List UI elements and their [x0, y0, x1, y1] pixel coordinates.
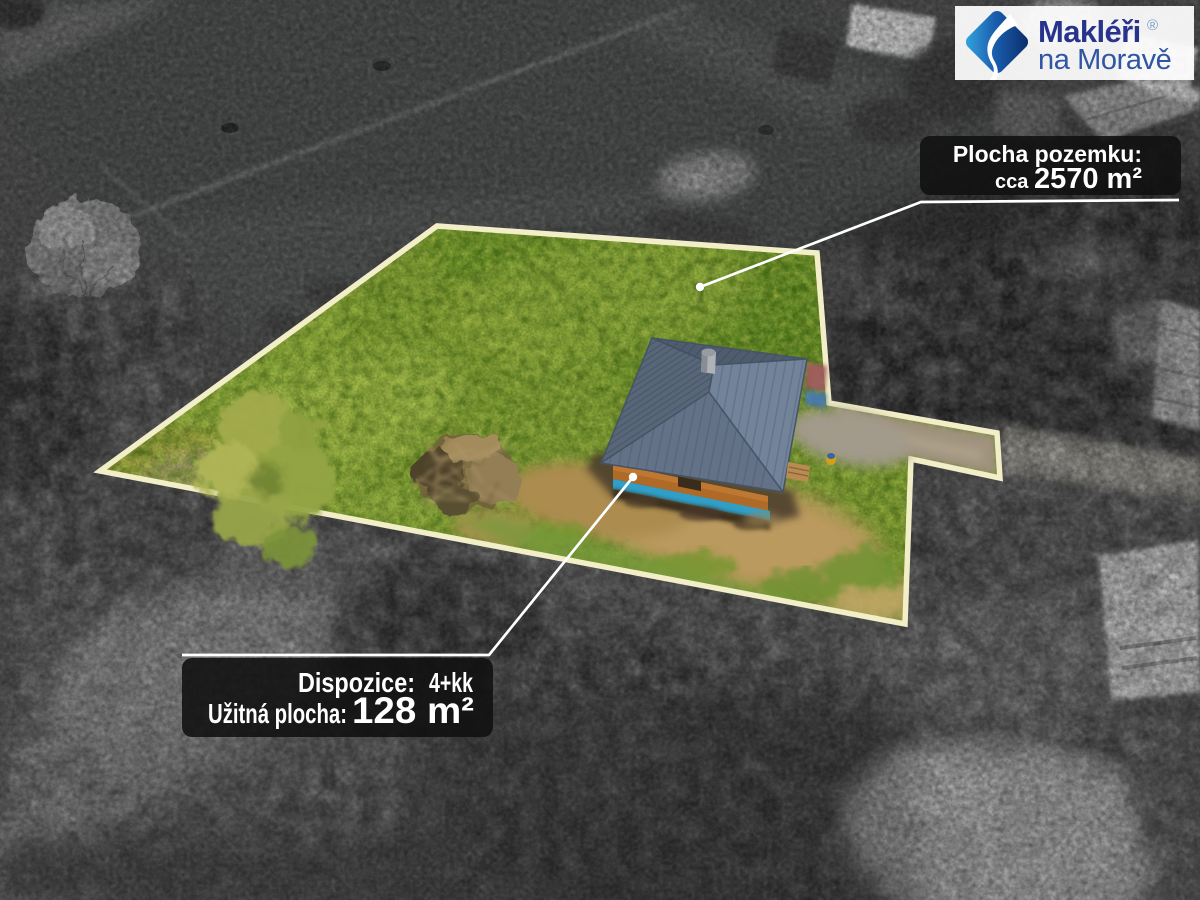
svg-text:128 m²: 128 m²	[352, 690, 474, 731]
svg-text:Užitná plocha:: Užitná plocha:	[208, 698, 347, 729]
svg-text:®: ®	[1147, 17, 1158, 34]
svg-text:na Moravě: na Moravě	[1038, 44, 1171, 76]
